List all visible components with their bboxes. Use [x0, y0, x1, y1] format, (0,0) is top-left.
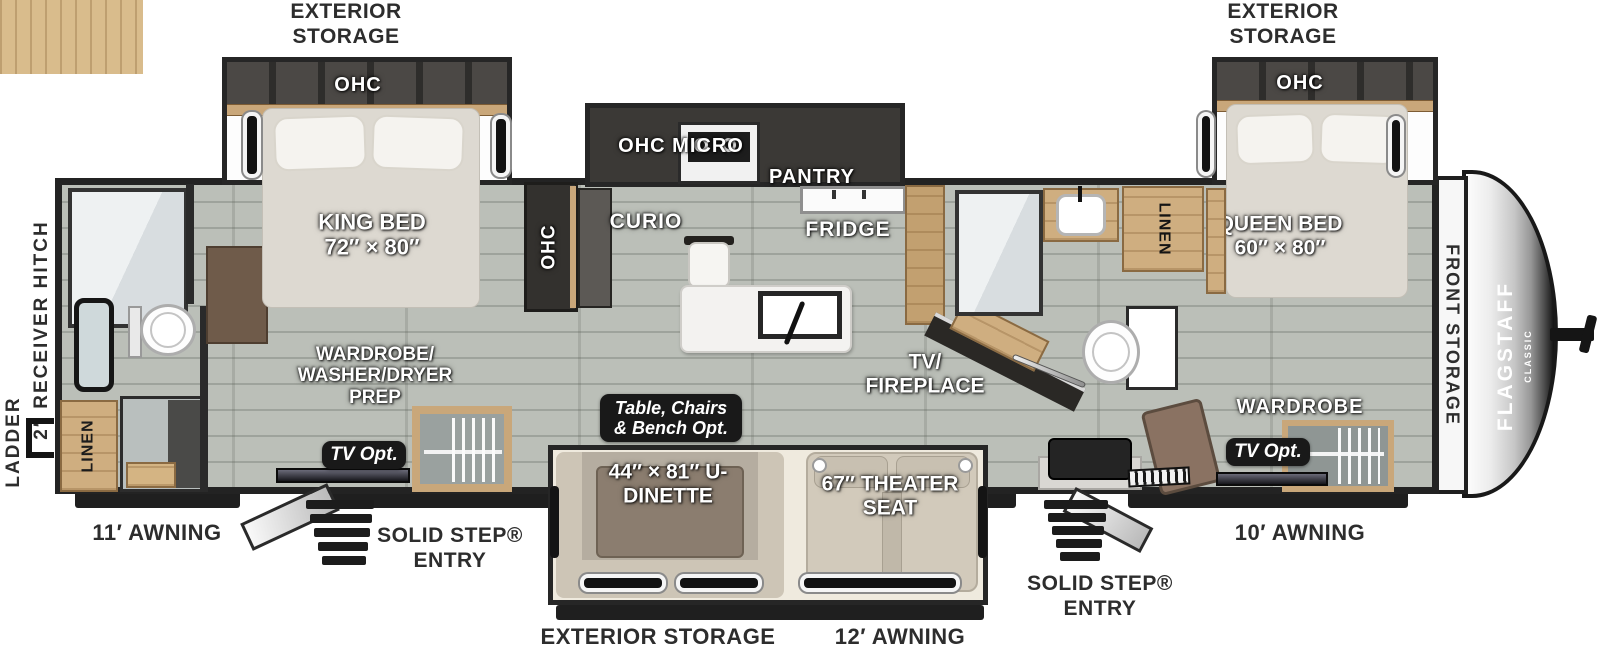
- fridge-label: FRIDGE: [805, 218, 890, 242]
- mid-linen-label: LINEN: [1154, 203, 1173, 256]
- king-pillow-left: [273, 114, 367, 171]
- front-tv-opt-badge: TV Opt.: [1226, 438, 1310, 466]
- front-storage-label: FRONT STORAGE: [1441, 244, 1462, 426]
- dinette-window-2: [676, 574, 762, 592]
- hall-ohc-label: OHC: [538, 224, 559, 269]
- receiver-hitch-label: 2″ RECEIVER HITCH: [31, 220, 53, 439]
- curio-cabinet: [578, 188, 612, 308]
- ladder-label: LADDER: [3, 396, 25, 487]
- queen-pillow-left: [1235, 113, 1315, 166]
- queen-pillow-right: [1319, 113, 1399, 166]
- exterior-storage-bottom-label: EXTERIOR STORAGE: [508, 624, 808, 650]
- cupholder-right-icon: [958, 458, 973, 473]
- brand-label: FLAGSTAFF: [1494, 281, 1518, 431]
- dinette-window-3: [800, 574, 960, 592]
- front-tv-icon: [1216, 472, 1328, 486]
- rear-dresser: [206, 246, 268, 344]
- front-step-4: [1056, 539, 1102, 548]
- rear-step-2: [310, 514, 372, 523]
- rear-linen-label: LINEN: [80, 420, 99, 473]
- exterior-storage-top-left-label: EXTERIOR STORAGE: [260, 0, 432, 50]
- rear-tv-icon: [276, 468, 410, 483]
- rear-step-bench: [126, 462, 176, 488]
- king-ohc-label: OHC: [334, 74, 381, 96]
- brand-sub-label: CLASSIC: [1523, 329, 1533, 383]
- dinette-side-window-right: [978, 486, 987, 558]
- awning-10-label: 10′ AWNING: [1220, 520, 1380, 546]
- queen-ohc-label: OHC: [1276, 72, 1323, 94]
- fridge-handle-1: [832, 190, 836, 199]
- front-step-5: [1060, 552, 1100, 561]
- front-step-1: [1044, 500, 1108, 509]
- exterior-storage-top-right-label: EXTERIOR STORAGE: [1197, 0, 1369, 50]
- dinette-label: 44″ × 81″ U-DINETTE: [598, 460, 738, 507]
- tv-fireplace-label: TV/ FIREPLACE: [863, 350, 987, 397]
- stool-icon: [688, 242, 730, 288]
- queen-nightstand: [1206, 188, 1226, 294]
- curio-label: CURIO: [610, 210, 683, 234]
- bath-bedroom-wall: [186, 184, 194, 304]
- front-wardrobe-label: WARDROBE: [1237, 396, 1364, 418]
- dinette-chassis-rail: [556, 605, 984, 620]
- laptop-icon: [1128, 466, 1191, 487]
- front-step-2: [1048, 513, 1106, 522]
- king-window-right-icon: [492, 115, 510, 177]
- front-wardrobe-hangers-icon: [1338, 428, 1380, 484]
- entry-rear-label: SOLID STEP® ENTRY: [368, 524, 532, 574]
- king-window-left-icon: [243, 112, 261, 178]
- dinette-side-window-left: [550, 486, 559, 558]
- kitchen-tall-cabinet: [905, 185, 945, 325]
- front-tv-opt-label: TV Opt.: [1234, 441, 1302, 462]
- dinette-window-1: [580, 574, 666, 592]
- theater-seat-label: 67″ THEATER SEAT: [800, 472, 980, 519]
- wardrobe-prep-label: WARDROBE/ WASHER/DRYER PREP: [286, 344, 464, 408]
- queen-window-right-icon: [1388, 116, 1404, 176]
- pantry-label: PANTRY: [769, 166, 855, 188]
- rear-tv-opt-badge: TV Opt.: [322, 441, 406, 469]
- floorplan-canvas: FLAGSTAFF CLASSIC FRONT STORAGE LADDER 2…: [0, 0, 1600, 650]
- front-step-3: [1052, 526, 1104, 535]
- rear-tv-opt-label: TV Opt.: [330, 444, 398, 465]
- king-bed-label: KING BED 72″ × 80″: [306, 210, 438, 259]
- dinette-option-label: Table, Chairs & Bench Opt.: [609, 398, 733, 438]
- pantry-cabinet: [0, 0, 143, 74]
- mid-toilet-seat: [1092, 332, 1130, 372]
- hall-ohc-trim: [570, 186, 576, 308]
- queen-bed-label: QUEEN BED 60″ × 80″: [1208, 212, 1353, 259]
- king-pillow-right: [371, 114, 465, 171]
- rear-step-3: [314, 528, 370, 537]
- ladder-icon: [26, 418, 54, 458]
- fridge-handle-2: [862, 190, 866, 199]
- front-heater-icon: [1048, 438, 1132, 480]
- dinette-option-badge: Table, Chairs & Bench Opt.: [600, 394, 742, 442]
- rear-mirror-cabinet: [74, 298, 114, 392]
- rear-step-5: [322, 556, 366, 565]
- rear-step-4: [318, 542, 368, 551]
- entry-front-label: SOLID STEP® ENTRY: [1018, 572, 1182, 622]
- fridge-icon: [800, 186, 906, 214]
- awning-11-label: 11′ AWNING: [77, 520, 237, 546]
- mid-shower: [955, 190, 1043, 316]
- rear-step-1: [306, 500, 374, 509]
- queen-ohc-cabinet: [1217, 62, 1433, 102]
- mid-faucet-icon: [1078, 186, 1082, 202]
- awning-12-label: 12′ AWNING: [820, 624, 980, 650]
- queen-window-left-icon: [1198, 112, 1214, 176]
- cupholder-left-icon: [812, 458, 827, 473]
- ohc-micro-label: OHC MICRO: [618, 135, 744, 157]
- rear-toilet-seat: [150, 312, 186, 348]
- rear-wardrobe-hangers-icon: [452, 418, 500, 482]
